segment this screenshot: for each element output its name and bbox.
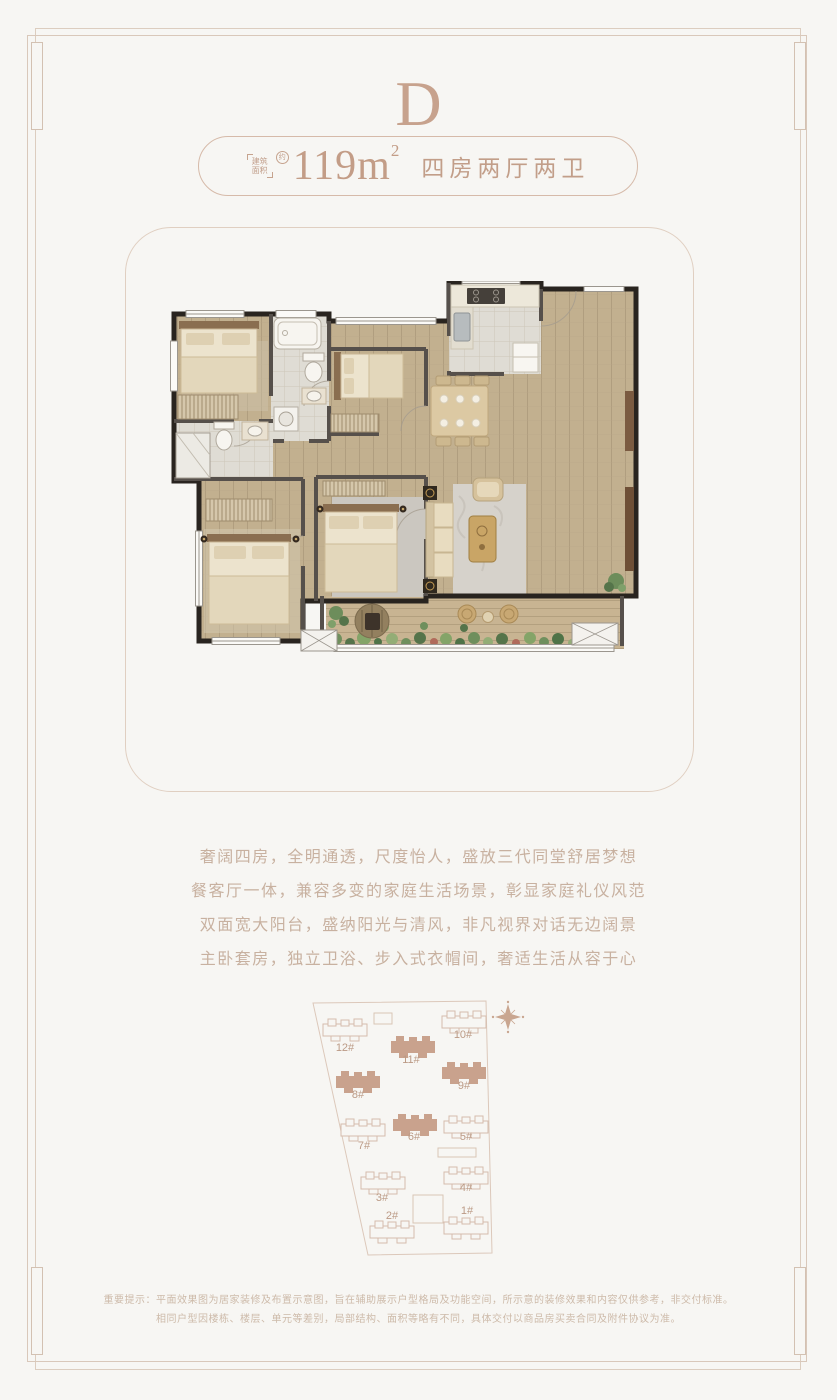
description-line: 双面宽大阳台，盛纳阳光与清风，非凡视界对话无边阔景 [0, 909, 837, 943]
area-value: 119m [293, 142, 391, 190]
site-building-5: 5# [444, 1116, 488, 1143]
disclaimer-line: 相同户型因楼栋、楼层、单元等差别，局部结构、面积等略有不同，具体交付以商品房买卖… [90, 1310, 747, 1329]
description-line: 主卧套房，独立卫浴、步入式衣帽间，奢适生活从容于心 [0, 943, 837, 977]
site-building-2: 2# [370, 1210, 414, 1243]
site-building-1: 1# [444, 1205, 488, 1239]
spec-pill: 建筑 面积 约 119m 2 四房两厅两卫 [198, 136, 638, 196]
bedroom1-bed [179, 321, 259, 393]
master-bed [316, 504, 406, 592]
site-building-12: 12# [323, 1019, 367, 1054]
bedroom2-bed [334, 352, 403, 400]
site-building-6: 6# [393, 1114, 437, 1143]
area-superscript: 2 [391, 141, 400, 161]
floorplan-card [125, 227, 694, 792]
site-building-8: 8# [336, 1071, 380, 1101]
building-label: 6# [408, 1131, 421, 1143]
building-label: 5# [460, 1131, 473, 1143]
disclaimer-block: 重要提示：平面效果图为居家装修及布置示意图，旨在辅助展示户型格局及功能空间，所示… [90, 1291, 747, 1329]
approx-mark: 约 [276, 151, 289, 164]
bedroom3-bed [200, 534, 299, 624]
building-label: 8# [352, 1089, 365, 1101]
site-building-9: 9# [442, 1062, 486, 1092]
bracket-line1: 建筑 [252, 157, 268, 166]
corner-ornament-bottom-right [794, 1267, 806, 1355]
building-label: 11# [402, 1054, 420, 1066]
site-building-10: 10# [442, 1011, 486, 1041]
area-bracket-label: 建筑 面积 [247, 154, 273, 178]
floorplan-image [164, 281, 656, 739]
building-label: 7# [358, 1140, 371, 1152]
bracket-line2: 面积 [252, 166, 268, 175]
compass-rose-icon [492, 1001, 524, 1033]
disclaimer-line: 重要提示：平面效果图为居家装修及布置示意图，旨在辅助展示户型格局及功能空间，所示… [90, 1291, 747, 1310]
description-block: 奢阔四房，全明通透，尺度怡人，盛放三代同堂舒居梦想 餐客厅一体，兼容多变的家庭生… [0, 841, 837, 977]
description-line: 奢阔四房，全明通透，尺度怡人，盛放三代同堂舒居梦想 [0, 841, 837, 875]
building-label: 1# [461, 1205, 474, 1217]
site-building-4: 4# [444, 1167, 488, 1194]
corner-ornament-bottom-left [31, 1267, 43, 1355]
building-label: 12# [336, 1042, 355, 1054]
building-label: 3# [376, 1192, 389, 1204]
site-building-11: 11# [391, 1036, 435, 1066]
unit-letter: D [0, 72, 837, 136]
site-building-3: 3# [361, 1172, 405, 1204]
flyer-page: D 建筑 面积 约 119m 2 四房两厅两卫 [0, 0, 837, 1400]
layout-text: 四房两厅两卫 [421, 149, 589, 183]
site-buildings: 12#11#10#8#9#7#6#5#3#4#2#1# [323, 1011, 488, 1243]
dining-set [431, 376, 489, 446]
building-label: 10# [454, 1029, 473, 1041]
site-building-7: 7# [341, 1119, 385, 1152]
site-plan: 12#11#10#8#9#7#6#5#3#4#2#1# [288, 985, 548, 1265]
description-line: 餐客厅一体，兼容多变的家庭生活场景，彰显家庭礼仪风范 [0, 875, 837, 909]
building-label: 2# [386, 1210, 399, 1222]
building-label: 9# [458, 1080, 471, 1092]
building-label: 4# [460, 1182, 473, 1194]
